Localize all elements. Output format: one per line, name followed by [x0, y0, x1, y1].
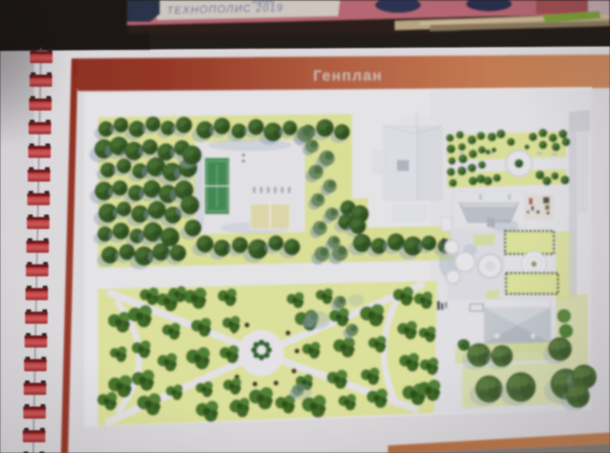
svg-text:городя: городя	[252, 0, 275, 6]
svg-text:Генплан: Генплан	[313, 67, 383, 84]
